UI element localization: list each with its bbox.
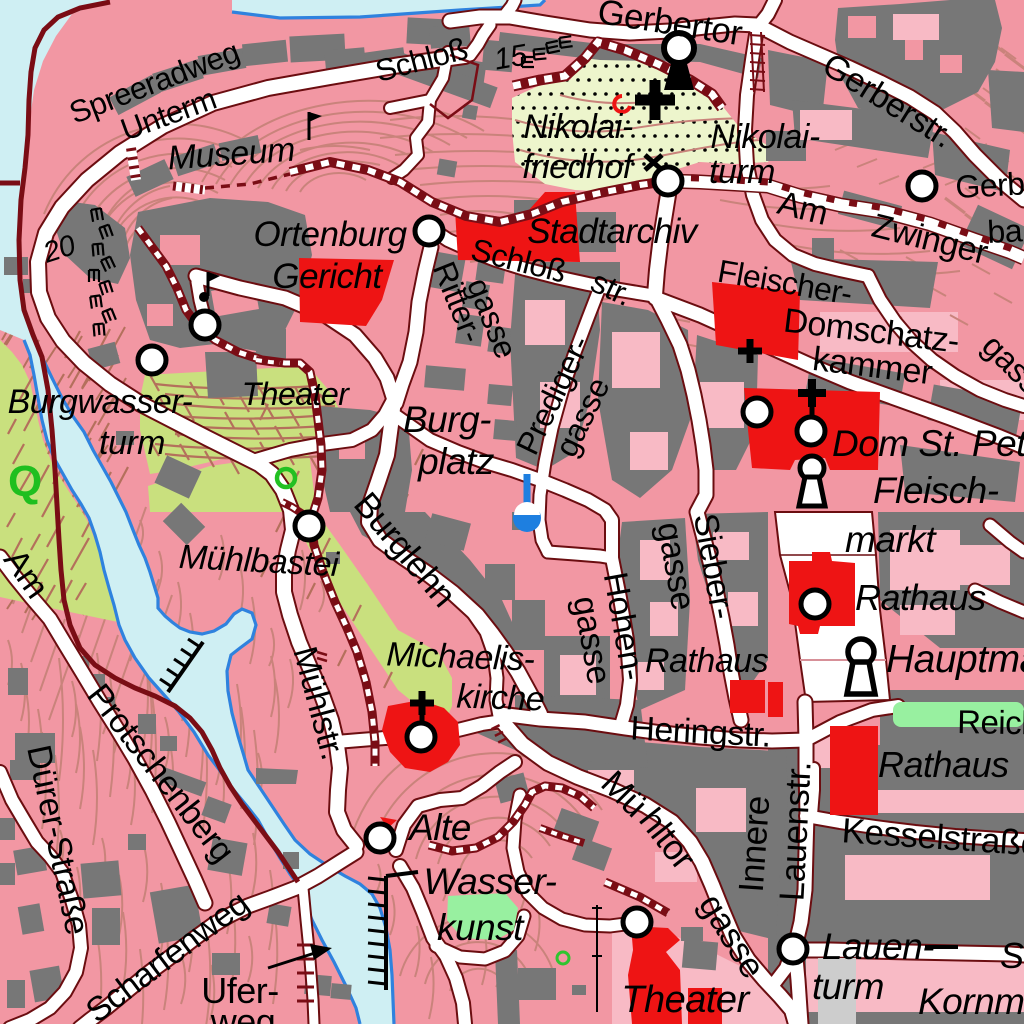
svg-text:Heringstr.: Heringstr. bbox=[629, 709, 771, 754]
svg-text:Gericht: Gericht bbox=[272, 257, 383, 296]
svg-text:Gerb: Gerb bbox=[954, 165, 1024, 205]
svg-text:Burgwasser-: Burgwasser- bbox=[8, 383, 193, 421]
svg-text:Innere: Innere bbox=[732, 795, 778, 894]
svg-text:friedhof: friedhof bbox=[522, 148, 635, 186]
svg-text:Rathaus: Rathaus bbox=[878, 744, 1009, 785]
svg-text:Dom St. Petri: Dom St. Petri bbox=[832, 423, 1024, 464]
svg-text:15: 15 bbox=[492, 38, 530, 76]
svg-text:kunst: kunst bbox=[437, 907, 525, 948]
svg-text:Sc: Sc bbox=[1000, 935, 1024, 976]
svg-text:Q: Q bbox=[8, 457, 42, 506]
svg-text:Rathaus: Rathaus bbox=[855, 577, 986, 618]
svg-text:ba: ba bbox=[986, 212, 1023, 250]
svg-text:Kornmarkt: Kornmarkt bbox=[918, 981, 1024, 1022]
svg-text:Hauptmarkt: Hauptmarkt bbox=[886, 638, 1024, 681]
svg-text:Rathaus: Rathaus bbox=[645, 642, 769, 680]
svg-text:turm: turm bbox=[99, 424, 165, 462]
svg-text:turm: turm bbox=[709, 153, 775, 191]
svg-text:weg: weg bbox=[210, 1001, 276, 1024]
svg-text:Fleisch-: Fleisch- bbox=[873, 470, 999, 511]
svg-text:Lauen-: Lauen- bbox=[822, 926, 934, 967]
svg-text:Ortenburg: Ortenburg bbox=[253, 215, 407, 254]
svg-text:Burg-: Burg- bbox=[403, 399, 491, 440]
svg-text:markt: markt bbox=[845, 519, 937, 560]
svg-text:Theater: Theater bbox=[621, 979, 750, 1021]
svg-text:turm: turm bbox=[812, 966, 884, 1007]
svg-text:kirche: kirche bbox=[456, 677, 545, 718]
svg-text:Nikolai-: Nikolai- bbox=[710, 118, 820, 156]
svg-text:Theater: Theater bbox=[242, 376, 351, 412]
svg-text:Alte: Alte bbox=[407, 807, 471, 848]
svg-text:Michaelis-: Michaelis- bbox=[386, 635, 535, 678]
svg-text:Lauenstr.: Lauenstr. bbox=[772, 761, 818, 902]
svg-text:Nikolai-: Nikolai- bbox=[523, 108, 633, 146]
svg-text:Reichenstr.: Reichenstr. bbox=[957, 703, 1024, 743]
svg-text:Stadtarchiv: Stadtarchiv bbox=[527, 212, 700, 251]
svg-text:platz: platz bbox=[417, 441, 494, 482]
svg-text:Wasser-: Wasser- bbox=[424, 861, 557, 902]
